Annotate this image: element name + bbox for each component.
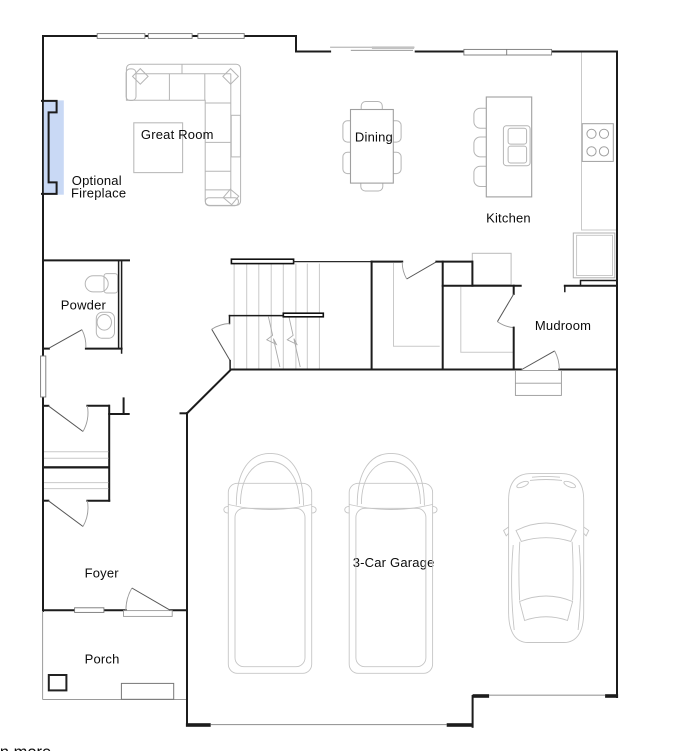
svg-text:earn more: earn more (0, 743, 51, 751)
svg-text:Powder: Powder (61, 298, 107, 313)
svg-text:Fireplace: Fireplace (71, 186, 126, 201)
svg-text:3-Car Garage: 3-Car Garage (353, 555, 435, 570)
svg-text:Foyer: Foyer (85, 565, 120, 580)
svg-text:Mudroom: Mudroom (535, 318, 591, 333)
svg-text:Dining: Dining (355, 129, 393, 144)
svg-text:Porch: Porch (85, 651, 120, 666)
svg-text:Kitchen: Kitchen (486, 210, 531, 225)
svg-text:Great Room: Great Room (141, 127, 214, 142)
